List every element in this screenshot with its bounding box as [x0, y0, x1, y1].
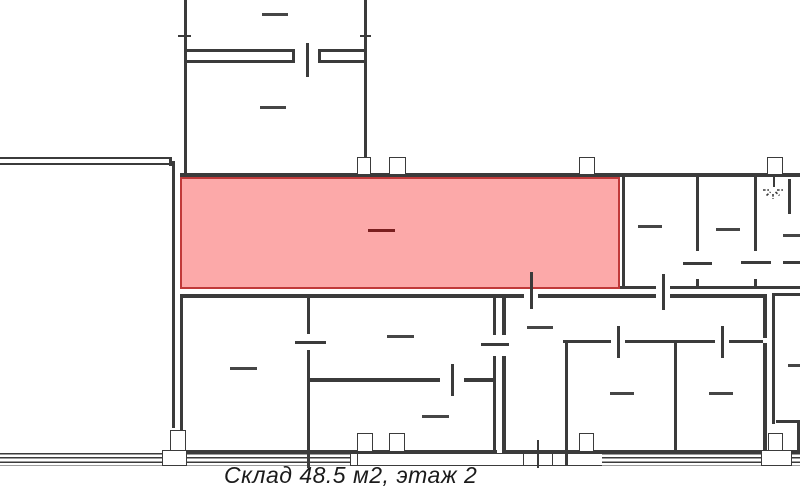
door-opening-mark: [683, 262, 712, 265]
wall-segment: [178, 35, 191, 37]
hatched-wall-band: [602, 453, 762, 466]
wall-segment: [538, 294, 656, 298]
door-opening-mark: [306, 43, 309, 77]
door-opening-mark: [481, 343, 509, 346]
structural-column: [579, 157, 595, 175]
wall-segment: [772, 294, 775, 424]
wall-segment: [464, 378, 496, 382]
wall-segment: [180, 450, 497, 453]
wall-segment: [754, 177, 757, 251]
wall-segment: [788, 179, 791, 214]
structural-column: [350, 453, 358, 466]
wall-segment: [493, 294, 496, 335]
room-label-dash: [709, 392, 733, 395]
wall-segment: [0, 157, 172, 159]
wall-segment: [180, 173, 800, 177]
wall-segment: [565, 343, 568, 453]
room-label-dash: [783, 234, 800, 237]
hatched-wall-band: [186, 453, 350, 466]
wall-segment: [320, 60, 366, 63]
wall-segment: [307, 350, 310, 453]
hatched-wall-band: [792, 453, 800, 466]
structural-column: [162, 450, 187, 466]
wall-segment: [625, 340, 715, 343]
room-label-dash: [387, 335, 414, 338]
plain-wall-band: [357, 453, 523, 466]
door-opening-mark: [662, 274, 665, 310]
highlighted-warehouse-room: [180, 177, 620, 289]
wall-segment: [307, 453, 310, 468]
wall-segment: [670, 294, 763, 298]
wall-segment: [670, 286, 800, 289]
room-label-dash: [716, 228, 740, 231]
hatched-wall-band: [0, 453, 162, 466]
door-opening-mark: [617, 326, 620, 358]
room-label-dash: [262, 13, 288, 16]
plain-wall-band: [553, 453, 602, 466]
wall-segment: [360, 35, 371, 37]
structural-column: [357, 157, 371, 175]
structural-column: [761, 450, 792, 466]
room-label-dash: [422, 415, 449, 418]
door-opening-mark: [451, 364, 454, 396]
structural-column: [579, 433, 594, 452]
door-opening-mark: [295, 341, 326, 344]
wall-segment: [172, 161, 175, 428]
room-label-dash: [638, 225, 662, 228]
door-opening-mark: [783, 261, 800, 264]
door-opening-mark: [773, 177, 775, 187]
wall-segment: [180, 294, 524, 298]
room-label-dash: [788, 364, 800, 367]
wall-segment: [763, 343, 767, 453]
wall-segment: [772, 293, 800, 296]
wall-segment: [307, 294, 310, 334]
structural-column: [767, 157, 783, 175]
wall-segment: [184, 0, 187, 175]
room-label-dash: [527, 326, 553, 329]
room-label-dash: [368, 229, 395, 232]
wall-segment: [565, 453, 568, 466]
wall-segment: [776, 420, 800, 423]
wall-segment: [696, 177, 699, 251]
plan-caption: Склад 48.5 м2, этаж 2: [224, 462, 477, 489]
structural-column: [768, 433, 783, 451]
wall-segment: [320, 49, 366, 52]
structural-column: [357, 433, 373, 452]
wall-segment: [186, 60, 292, 63]
wall-segment: [620, 286, 656, 289]
door-opening-mark: [721, 326, 724, 358]
wall-segment: [0, 163, 169, 165]
room-label-dash: [260, 106, 286, 109]
wall-segment: [729, 340, 763, 343]
wall-segment: [622, 177, 625, 288]
wall-segment: [763, 294, 767, 338]
floor-plan: Склад 48.5 м2, этаж 2: [0, 0, 800, 497]
wall-segment: [493, 356, 496, 453]
wall-segment: [674, 343, 677, 453]
wall-segment: [563, 340, 611, 343]
wall-segment: [364, 0, 367, 175]
wall-segment: [310, 378, 440, 382]
wall-segment: [292, 49, 295, 63]
room-label-dash: [230, 367, 257, 370]
door-opening-mark: [530, 272, 533, 309]
room-label-dash: [610, 392, 634, 395]
door-opening-mark: [741, 261, 771, 264]
door-opening-mark: [537, 440, 539, 468]
structural-column: [170, 430, 186, 452]
wall-segment: [186, 49, 292, 52]
structural-column: [389, 433, 405, 452]
wall-segment: [502, 356, 506, 453]
structural-column: [389, 157, 406, 175]
wall-segment: [502, 294, 506, 335]
wall-segment: [318, 49, 321, 63]
